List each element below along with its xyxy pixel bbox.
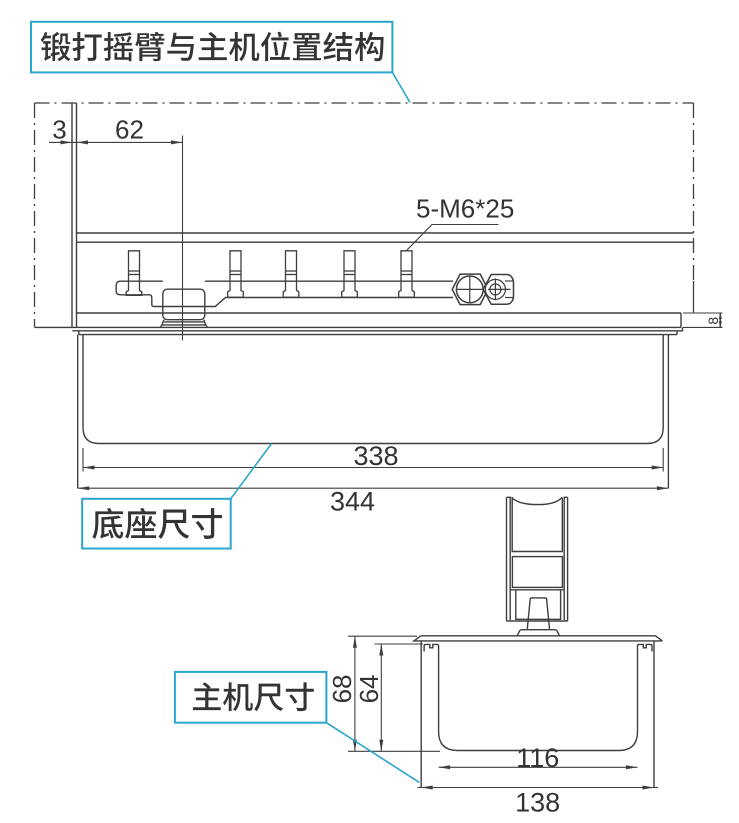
svg-text:3: 3 [52, 114, 66, 144]
svg-text:138: 138 [515, 787, 560, 817]
svg-text:62: 62 [115, 114, 144, 144]
svg-text:116: 116 [516, 743, 559, 773]
svg-text:64: 64 [354, 674, 384, 703]
svg-text:338: 338 [353, 441, 398, 471]
svg-text:5-M6*25: 5-M6*25 [416, 194, 514, 224]
svg-text:8: 8 [705, 317, 721, 325]
svg-text:68: 68 [327, 674, 357, 703]
svg-text:344: 344 [330, 486, 375, 516]
